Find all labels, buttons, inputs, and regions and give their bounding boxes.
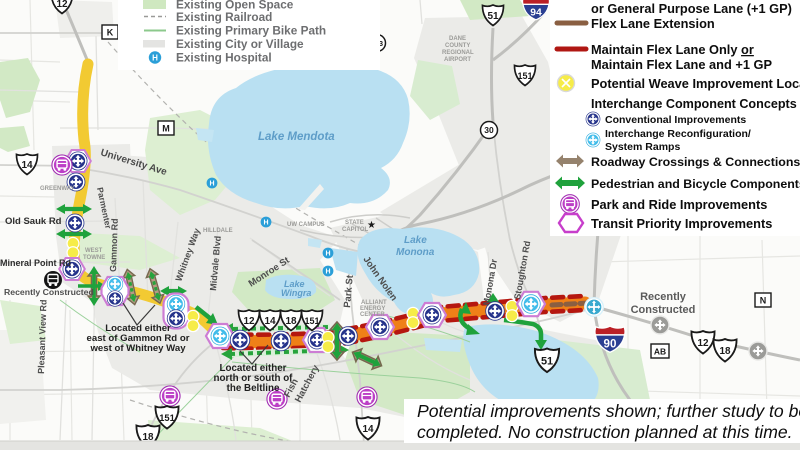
svg-text:Park and Ride Improvements: Park and Ride Improvements xyxy=(591,197,767,212)
svg-text:System Ramps: System Ramps xyxy=(605,141,680,153)
svg-text:Old Sauk Rd: Old Sauk Rd xyxy=(5,216,62,227)
svg-text:STATE: STATE xyxy=(345,220,364,226)
svg-text:Recently Constructed: Recently Constructed xyxy=(4,287,94,297)
svg-text:Conventional Improvements: Conventional Improvements xyxy=(605,114,746,126)
svg-text:UW CAMPUS: UW CAMPUS xyxy=(287,222,325,228)
svg-text:Roadway Crossings & Connection: Roadway Crossings & Connections xyxy=(591,155,800,169)
svg-text:completed. No construction pla: completed. No construction planned at th… xyxy=(417,422,793,442)
svg-text:Interchange Reconfiguration/: Interchange Reconfiguration/ xyxy=(605,128,751,140)
svg-text:51: 51 xyxy=(487,11,499,22)
svg-text:12: 12 xyxy=(243,316,255,327)
svg-text:Existing Hospital: Existing Hospital xyxy=(176,51,272,65)
svg-text:Lake Mendota: Lake Mendota xyxy=(258,131,335,143)
svg-text:CENTER: CENTER xyxy=(360,312,385,318)
svg-text:Potential Weave Improvement Lo: Potential Weave Improvement Location xyxy=(591,76,800,91)
svg-text:Lake: Lake xyxy=(404,235,427,246)
svg-text:M: M xyxy=(162,124,170,134)
svg-text:Existing City or Village: Existing City or Village xyxy=(176,37,304,51)
svg-text:N: N xyxy=(760,296,767,306)
svg-text:30: 30 xyxy=(484,125,494,135)
svg-text:★: ★ xyxy=(367,220,376,231)
svg-text:18: 18 xyxy=(285,316,297,327)
svg-text:151: 151 xyxy=(304,316,319,326)
svg-text:14: 14 xyxy=(21,160,33,171)
svg-text:REGIONAL: REGIONAL xyxy=(442,50,474,56)
svg-text:90: 90 xyxy=(604,338,617,351)
svg-text:Gammon Rd: Gammon Rd xyxy=(108,218,120,272)
svg-text:the Beltline: the Beltline xyxy=(227,383,280,394)
svg-text:Flex Lane Extension: Flex Lane Extension xyxy=(591,16,715,31)
svg-text:151: 151 xyxy=(517,71,532,81)
svg-text:Maintain Flex Lane and +1 GP: Maintain Flex Lane and +1 GP xyxy=(591,57,772,72)
svg-text:14: 14 xyxy=(362,424,374,435)
svg-text:CAPITOL: CAPITOL xyxy=(342,227,369,233)
svg-text:12: 12 xyxy=(697,338,709,349)
svg-text:Recently: Recently xyxy=(640,291,687,303)
svg-text:18: 18 xyxy=(719,346,731,357)
svg-text:Existing Railroad: Existing Railroad xyxy=(176,10,272,24)
svg-text:west of Whitney Way: west of Whitney Way xyxy=(89,343,186,354)
svg-text:Mineral Point Rd: Mineral Point Rd xyxy=(0,258,71,268)
svg-text:COUNTY: COUNTY xyxy=(445,43,470,49)
svg-text:12: 12 xyxy=(56,0,68,10)
svg-text:Monona: Monona xyxy=(396,247,435,258)
svg-text:Transit Priority Improvements: Transit Priority Improvements xyxy=(591,216,772,231)
svg-text:HILLDALE: HILLDALE xyxy=(203,228,233,234)
svg-text:Potential improvements shown;: Potential improvements shown; further st… xyxy=(417,401,800,421)
svg-text:51: 51 xyxy=(541,355,553,367)
svg-text:Maintain Flex Lane Only or: Maintain Flex Lane Only or xyxy=(591,42,754,57)
svg-text:or General Purpose Lane (+1 GP: or General Purpose Lane (+1 GP) xyxy=(591,1,792,16)
svg-text:Interchange Component Concepts: Interchange Component Concepts xyxy=(591,97,797,111)
svg-text:AIRPORT: AIRPORT xyxy=(444,57,471,63)
svg-text:K: K xyxy=(107,28,114,38)
svg-text:Constructed: Constructed xyxy=(631,304,696,316)
svg-text:WEST: WEST xyxy=(85,248,103,254)
svg-text:AB: AB xyxy=(654,347,666,357)
svg-text:DANE: DANE xyxy=(449,36,466,42)
svg-text:Pedestrian and Bicycle Compone: Pedestrian and Bicycle Components xyxy=(591,177,800,191)
svg-text:151: 151 xyxy=(159,413,175,423)
svg-text:GREENWAY: GREENWAY xyxy=(40,186,74,192)
svg-text:14: 14 xyxy=(264,316,276,327)
svg-text:Wingra: Wingra xyxy=(281,288,311,298)
svg-text:94: 94 xyxy=(530,8,542,19)
svg-text:Existing Primary Bike Path: Existing Primary Bike Path xyxy=(176,24,326,38)
svg-text:TOWNE: TOWNE xyxy=(83,255,105,261)
